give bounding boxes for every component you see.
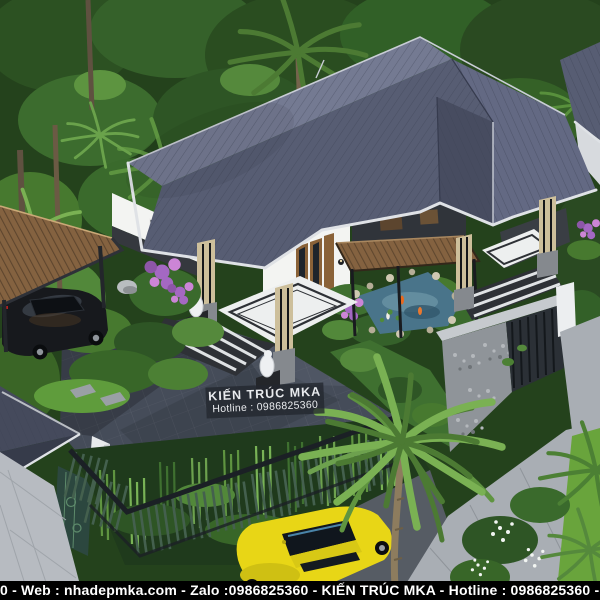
- watermark: KIẾN TRÚC MKA Hotline : 0986825360: [205, 382, 324, 419]
- stone-column: [454, 234, 474, 312]
- bottom-banner: 0 - Web : nhadepmka.com - Zalo :09868253…: [0, 581, 600, 600]
- gabion-stone-wall: [442, 322, 512, 452]
- stone-column: [273, 283, 295, 386]
- banner-text: 0 - Web : nhadepmka.com - Zalo :09868253…: [0, 582, 600, 598]
- render-canvas: [0, 0, 600, 600]
- stone-column: [537, 196, 558, 278]
- architecture-render-scene: KIẾN TRÚC MKA Hotline : 0986825360 0 - W…: [0, 0, 600, 600]
